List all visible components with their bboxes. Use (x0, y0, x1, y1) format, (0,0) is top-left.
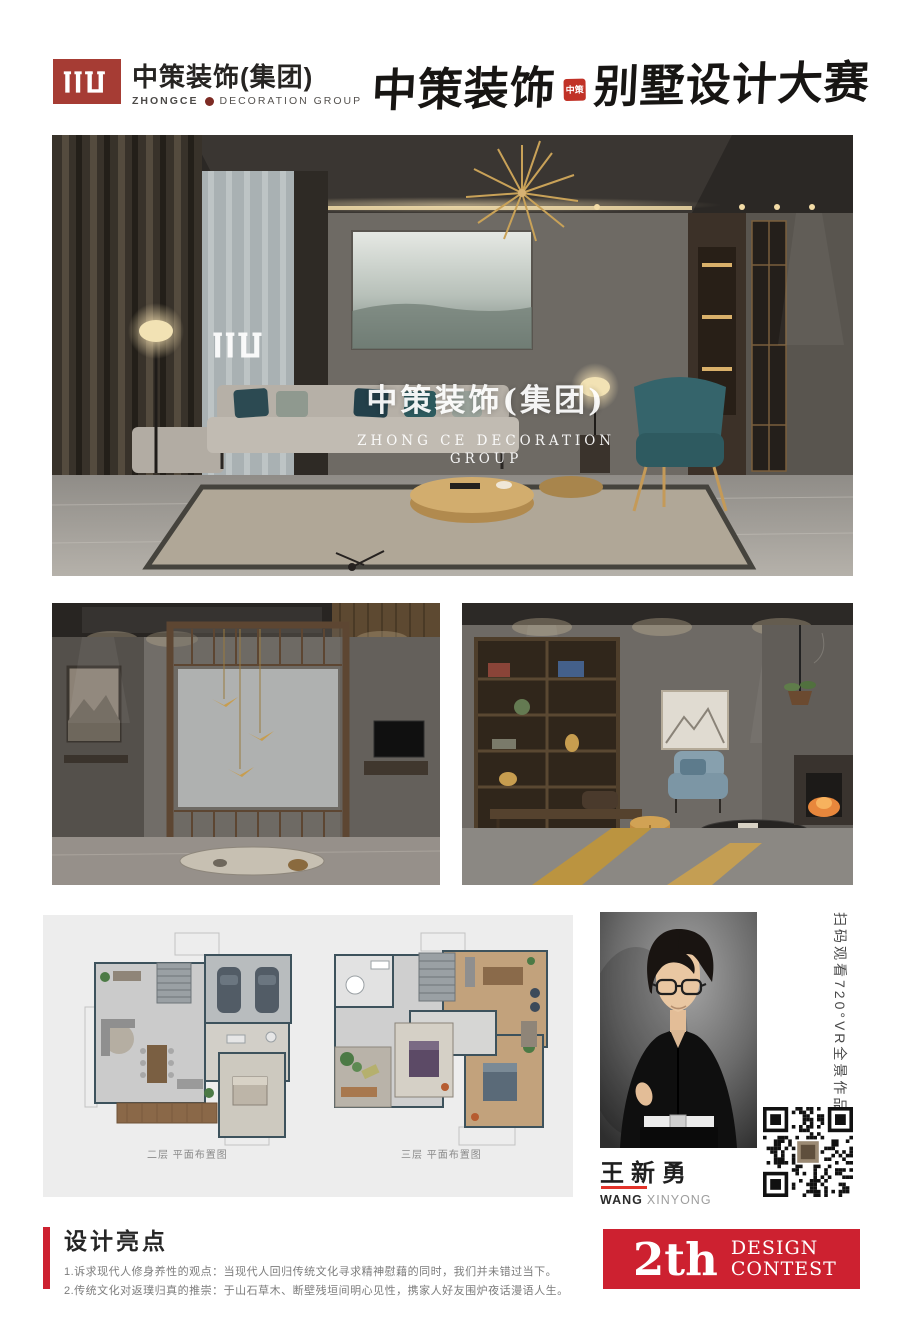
stairs (419, 953, 455, 1001)
fireplace (794, 755, 853, 825)
floorplan-caption-2f: 二层 平面布置图 (147, 1146, 228, 1161)
designer-portrait-graphic (600, 912, 757, 1148)
name-underline (601, 1186, 647, 1189)
contest-seal: 中策 (563, 78, 585, 100)
photo-foyer-screen (52, 603, 440, 885)
designer-name-cn: 王新勇 (600, 1153, 693, 1188)
brand-en-bold: ZHONGCE (132, 95, 199, 107)
contest-title: 中策装饰 中策 别墅设计大赛 (370, 46, 871, 120)
hero-photo-living-room: 中策装饰(集团) ZHONG CE DECORATION GROUP (52, 135, 853, 576)
brand-monogram-icon (58, 64, 116, 100)
lattice-screen (170, 625, 346, 851)
mountain-art (662, 691, 728, 749)
footer-section-title: 设计亮点 (64, 1222, 168, 1256)
brand-en-rest: DECORATION GROUP (220, 95, 363, 107)
brand-name-cn: 中策装饰(集团) (132, 62, 362, 92)
floor (462, 828, 853, 885)
badge-line2: CONTEST (731, 1259, 837, 1280)
poster-page: 中策装饰(集团) ZHONGCE DECORATION GROUP 中策装饰 中… (0, 0, 900, 1333)
brand-dot-icon (205, 97, 214, 106)
designer-portrait (600, 912, 757, 1148)
designer-name-en-first: WANG (600, 1193, 643, 1207)
designer-name-en: WANGXINYONG (600, 1193, 712, 1207)
qr-code (763, 1107, 853, 1197)
left-wall (52, 637, 144, 837)
contest-badge: 2th DESIGN CONTEST (603, 1229, 860, 1289)
designer-name-en-last: XINYONG (647, 1193, 712, 1207)
photo-tea-study-room (462, 603, 853, 885)
bedroom-purple (395, 1023, 453, 1097)
badge-number: 2th (633, 1237, 718, 1282)
contest-title-right: 别墅设计大赛 (592, 46, 871, 116)
floorplan-panel: 二层 平面布置图 三层 平面布置图 (43, 915, 573, 1197)
brand-logo (53, 59, 121, 104)
stairs (157, 963, 191, 1003)
vr-scan-caption: 扫码观看720°VR全景作品 (830, 912, 850, 1114)
terrace (335, 1047, 391, 1107)
foyer-graphic (52, 603, 440, 885)
watermark-monogram-icon (206, 325, 766, 365)
design-highlight-1: 1.诉求现代人修身养性的观点：当现代人回归传统文化寻求精神慰藉的同时，我们并未错… (64, 1263, 589, 1279)
floorplan-second-floor (57, 927, 309, 1153)
watermark-en-line2: GROUP (206, 450, 766, 468)
design-highlight-2: 2.传统文化对返璞归真的推崇：于山石草木、断壁残垣间明心见性，携家人好友围炉夜话… (64, 1282, 589, 1298)
floorplan-third-floor (315, 927, 561, 1153)
contest-title-left: 中策装饰 (370, 51, 557, 119)
hero-watermark: 中策装饰(集团) ZHONG CE DECORATION GROUP (206, 325, 766, 468)
floorplan-caption-3f: 三层 平面布置图 (401, 1146, 482, 1161)
badge-line1: DESIGN (731, 1238, 837, 1259)
brand-name-en: ZHONGCE DECORATION GROUP (132, 95, 362, 107)
footer-accent-bar (43, 1227, 50, 1289)
floorplan-3f-graphic (315, 927, 561, 1153)
floor (52, 837, 440, 885)
tv-wall (364, 721, 428, 775)
brand-text-block: 中策装饰(集团) ZHONGCE DECORATION GROUP (132, 62, 362, 107)
watermark-en: ZHONG CE DECORATION GROUP (206, 432, 766, 468)
badge-text: DESIGN CONTEST (731, 1238, 837, 1280)
watermark-cn: 中策装饰(集团) (206, 375, 766, 420)
qr-code-graphic (763, 1107, 853, 1197)
study-graphic (462, 603, 853, 885)
watermark-en-line1: ZHONG CE DECORATION (206, 432, 766, 450)
floorplan-2f-graphic (57, 927, 309, 1153)
